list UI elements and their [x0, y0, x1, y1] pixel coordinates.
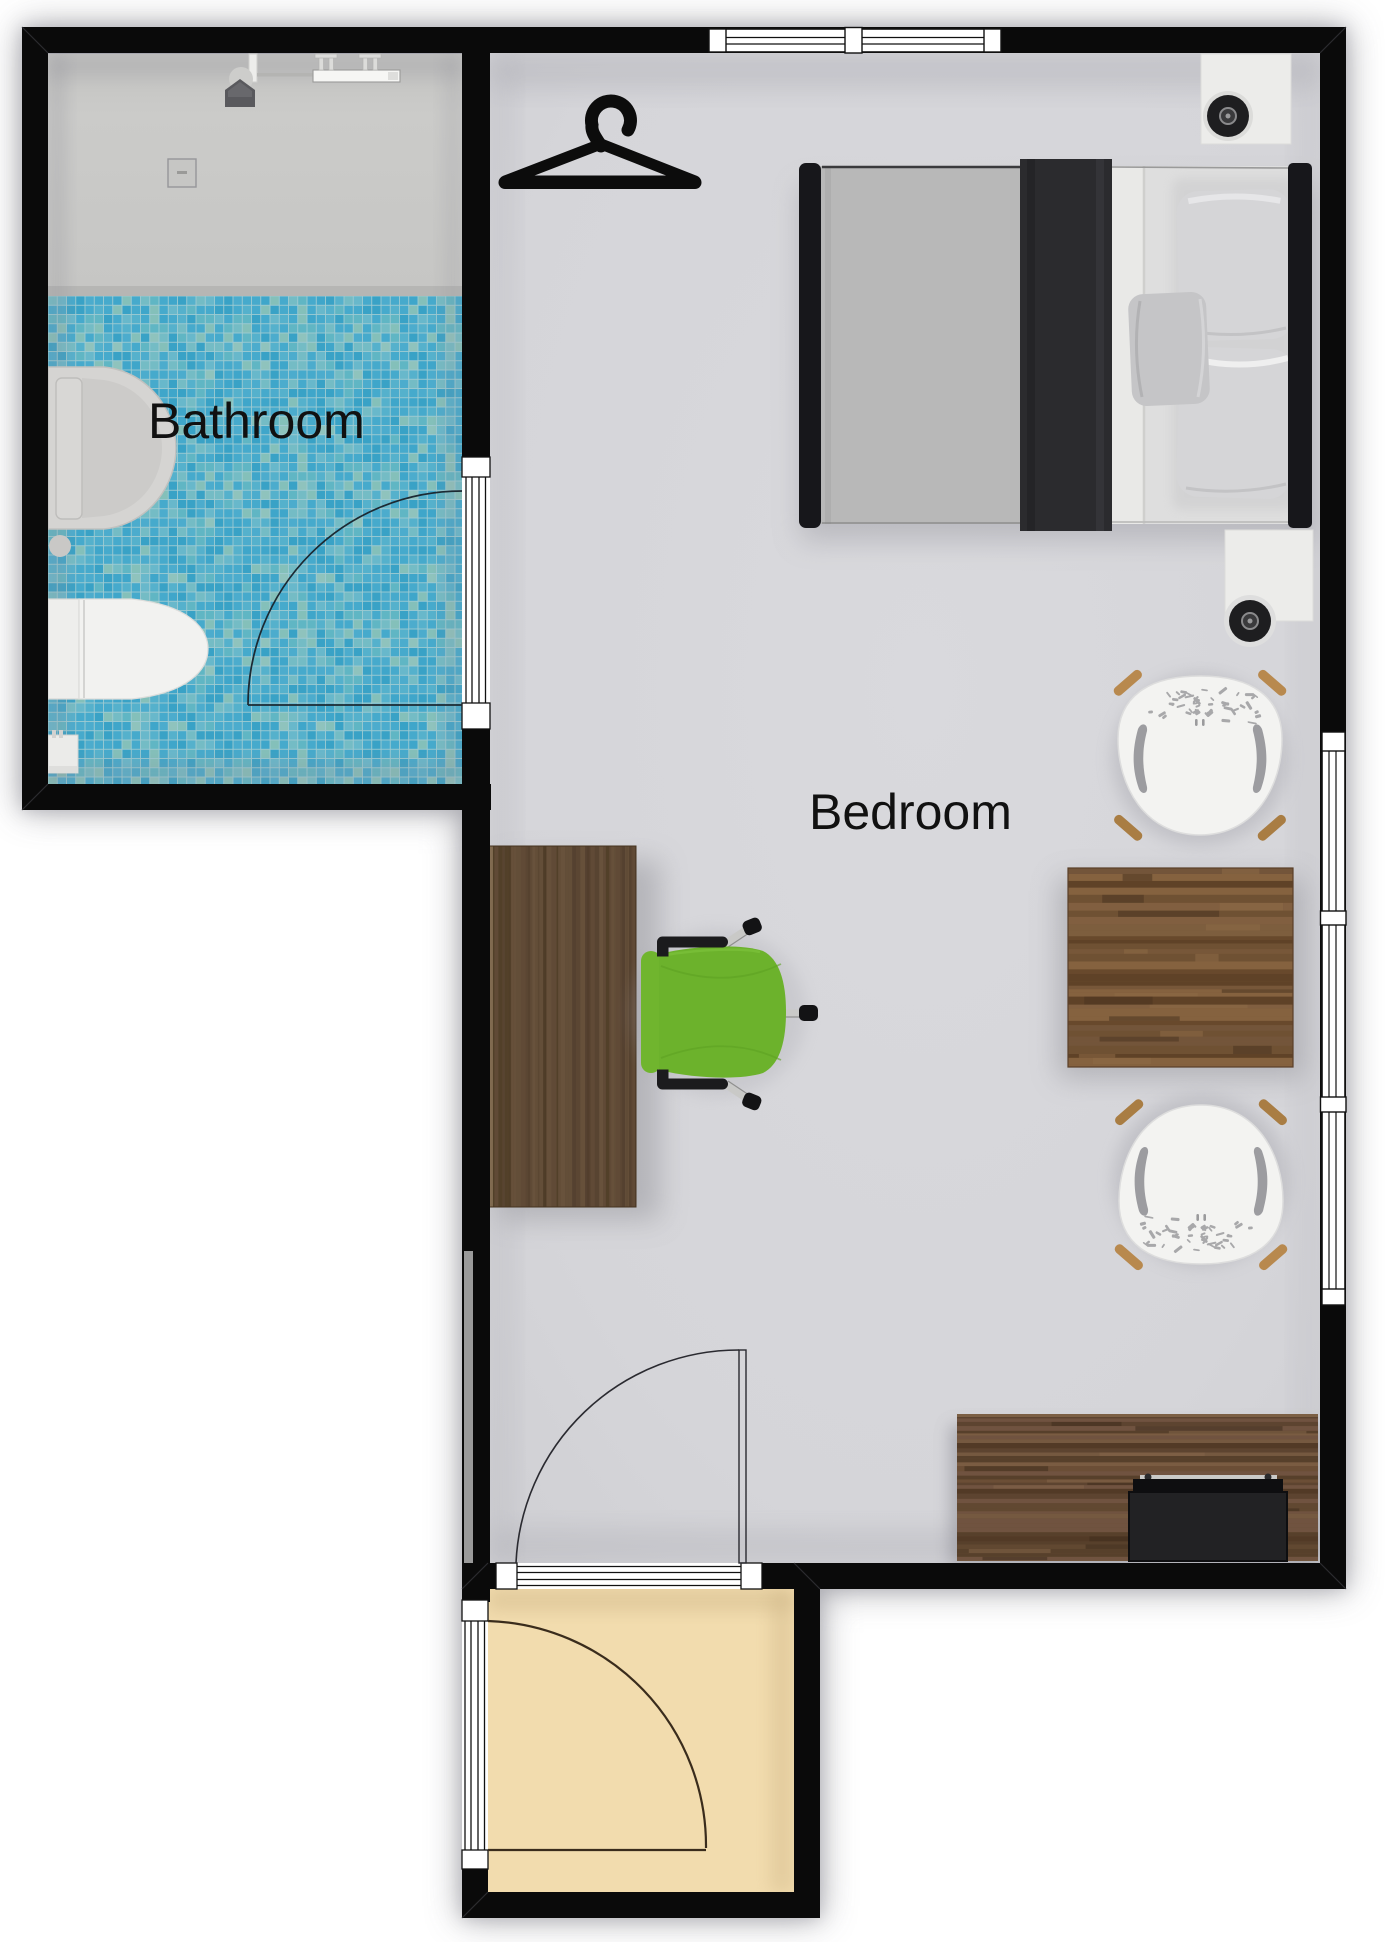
svg-text:Bathroom: Bathroom: [148, 393, 365, 449]
svg-text:Bedroom: Bedroom: [809, 784, 1012, 840]
